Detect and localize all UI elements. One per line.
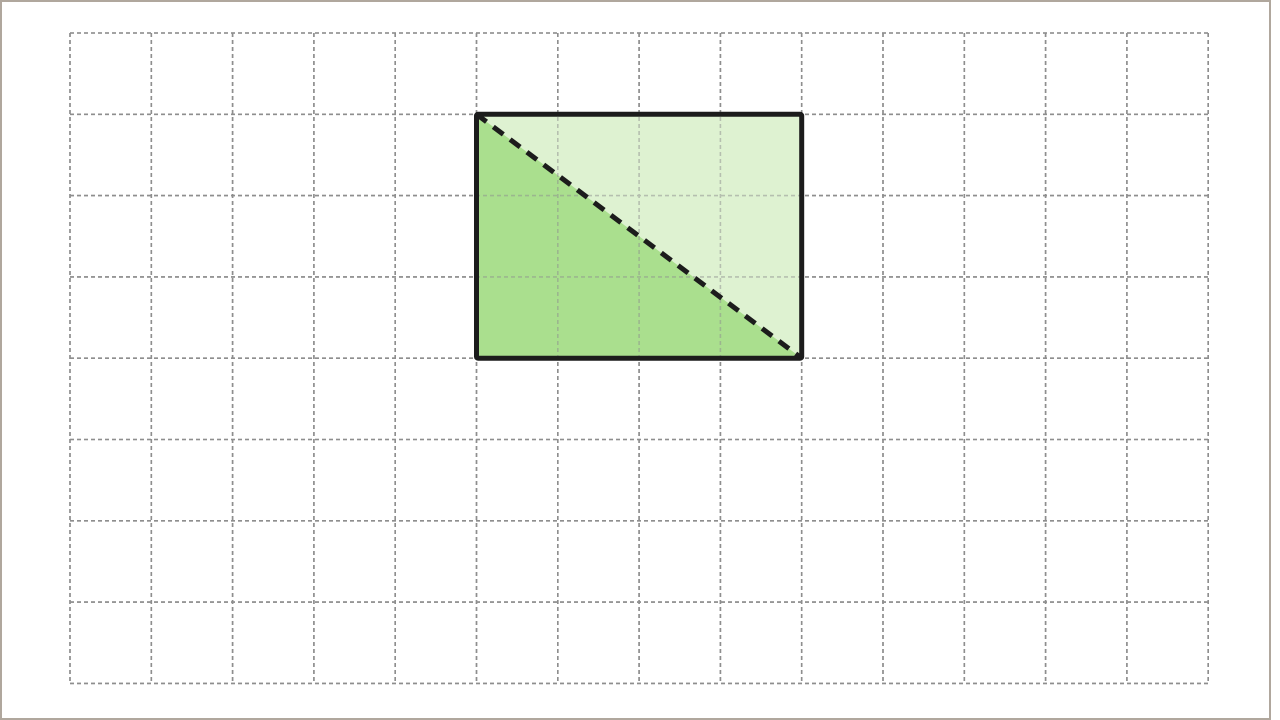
worksheet-canvas bbox=[0, 0, 1280, 720]
grid-paper-diagram bbox=[0, 0, 1280, 720]
